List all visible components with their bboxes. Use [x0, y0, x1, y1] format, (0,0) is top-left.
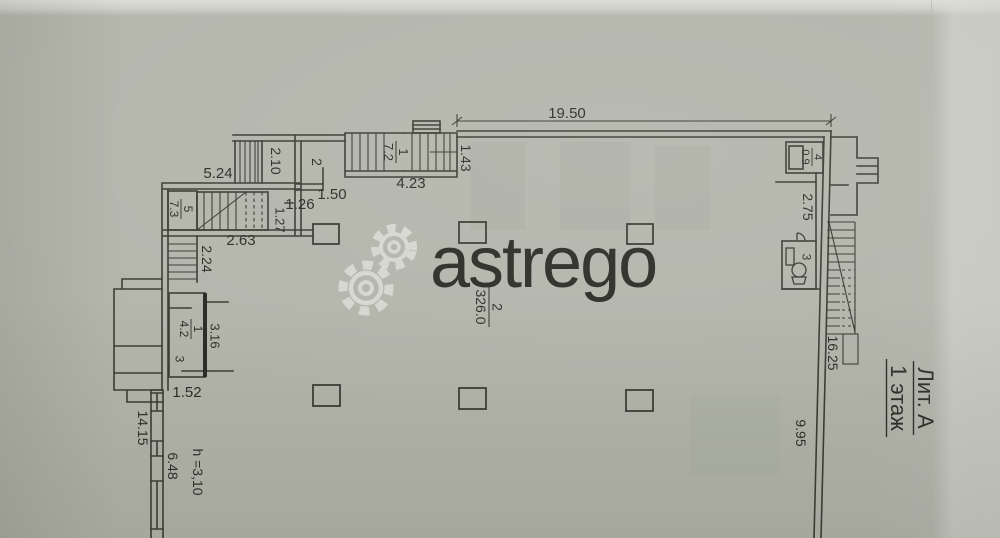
dim-1-43: 1.43 — [458, 144, 474, 171]
dim-2-75: 2.75 — [800, 193, 816, 220]
watermark: astrego — [340, 223, 656, 314]
closet-number: 4 — [812, 154, 824, 160]
stair-room-area: 7.2 — [381, 143, 396, 161]
sheet-title-line1: Лит. А — [913, 367, 938, 429]
right-stair-dashed — [842, 270, 855, 326]
dim-3-16: 3.16 — [208, 323, 223, 348]
dim-9-95: 9.95 — [793, 419, 809, 446]
column — [313, 224, 339, 244]
room5-label: 5 7.3 — [167, 199, 195, 219]
left-room-number: 1 — [191, 326, 205, 333]
sheet-title-line2: 1 этаж — [886, 365, 911, 431]
dim-16-25: 16.25 — [825, 335, 841, 370]
stair-room-number: 1 — [396, 148, 411, 155]
dim-1-27: 1.27 — [273, 207, 288, 232]
stair-2-10-treads — [240, 141, 258, 183]
dim-2-63: 2.63 — [226, 232, 255, 249]
dim-14-15: 14.15 — [135, 410, 151, 445]
right-stair-landing — [843, 334, 858, 364]
room5-area: 7.3 — [167, 201, 181, 218]
hall-number: 2 — [490, 303, 506, 311]
column — [626, 390, 653, 411]
stair-2-63-dashed — [246, 192, 262, 230]
stair-2-63-treads — [204, 192, 236, 230]
dim-1-50: 1.50 — [317, 186, 346, 203]
floor-plan-drawing: 19.50 5.24 1.50 4.23 2.63 1.26 1.52 2.10… — [0, 0, 1000, 538]
left-room-label: 1 4.2 — [177, 319, 205, 339]
column — [459, 388, 486, 409]
closet-area: 0.9 — [799, 149, 811, 164]
column — [313, 385, 340, 406]
left-room-side-mark: 3 — [173, 356, 187, 363]
toilet-icon — [792, 263, 806, 277]
door-swing-icon — [797, 233, 805, 241]
dim-4-23: 4.23 — [396, 175, 425, 192]
closet-label: 4 0.9 — [799, 148, 824, 166]
stair-2-24-treads — [168, 244, 197, 279]
gears-icon — [340, 224, 417, 314]
watermark-text: astrego — [430, 223, 656, 303]
dim-5-24: 5.24 — [203, 165, 232, 182]
top-dimension-line — [452, 114, 836, 127]
left-room-area: 4.2 — [177, 321, 191, 338]
floorplan-photo: 19.50 5.24 1.50 4.23 2.63 1.26 1.52 2.10… — [0, 0, 1000, 538]
dim-19-50: 19.50 — [548, 105, 586, 122]
toilet-base — [792, 277, 806, 284]
ceiling-height-note: h =3,10 — [190, 448, 206, 495]
dim-2-10: 2.10 — [268, 147, 284, 174]
stair-room-label: 1 7.2 — [381, 141, 411, 163]
dim-1-26: 1.26 — [285, 196, 314, 213]
dim-2-24: 2.24 — [199, 245, 215, 272]
sink-icon — [786, 248, 794, 265]
room5-number: 5 — [181, 206, 195, 213]
dim-1-52: 1.52 — [172, 384, 201, 401]
dim-6-48: 6.48 — [165, 452, 181, 479]
sheet-title: Лит. А 1 этаж — [886, 359, 938, 437]
paper-showthrough — [470, 142, 780, 475]
wc-room-label: 3 — [800, 254, 814, 261]
room-2-top-label: 2 — [309, 158, 325, 166]
